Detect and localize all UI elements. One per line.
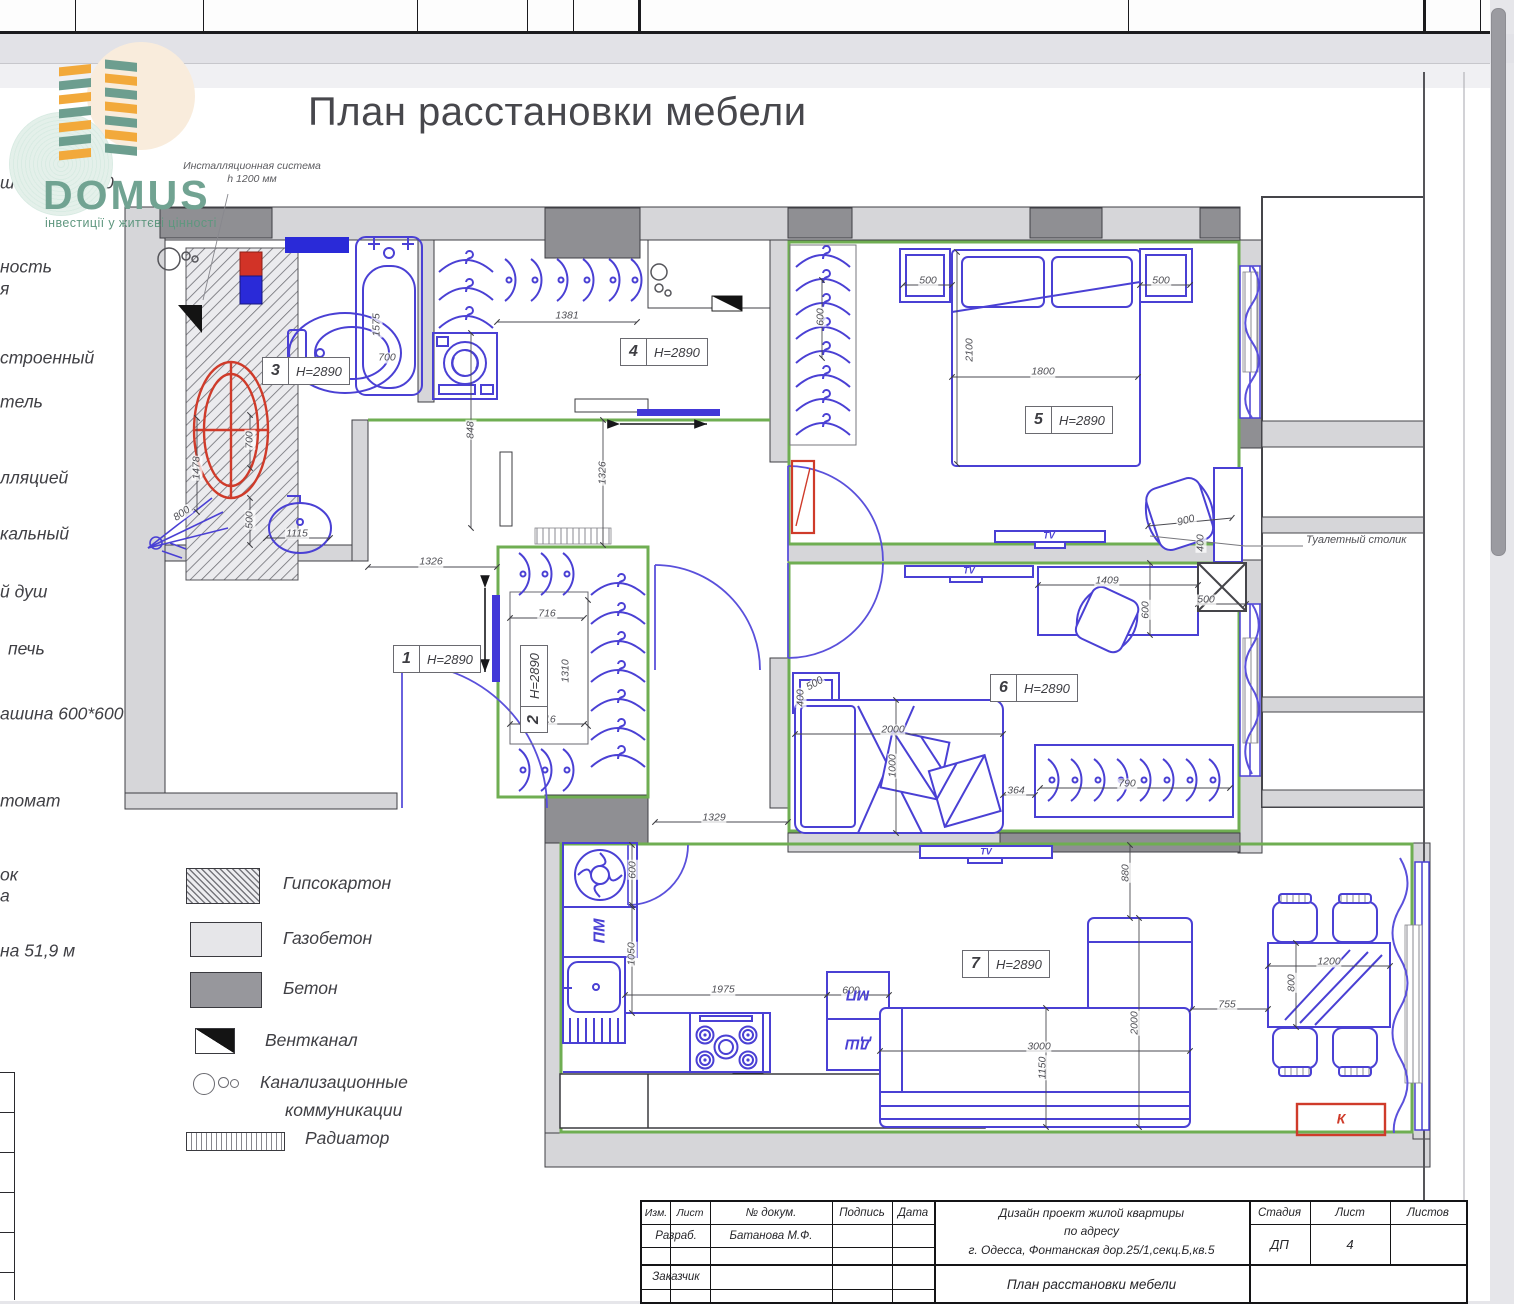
tb-razrab-value: Батанова М.Ф.: [710, 1224, 832, 1247]
left-label: ашина 600*600: [0, 704, 123, 725]
left-label: томат: [0, 791, 60, 812]
dimension-label: 600: [816, 307, 827, 327]
legend-swatch-concrete: [190, 972, 262, 1008]
legend-label-concrete: Бетон: [283, 978, 338, 999]
dimension-label: 755: [1217, 1000, 1237, 1011]
room-label-7: 7H=2890: [962, 950, 1050, 978]
dimension-label: 1409: [1094, 576, 1119, 587]
dimension-label: 790: [1117, 779, 1137, 790]
room-label-5: 5H=2890: [1025, 406, 1113, 434]
dimension-label: 600: [1141, 600, 1152, 620]
title-block: Изм. Лист № докум. Подпись Дата Разраб. …: [640, 1200, 1468, 1304]
legend-label-gypsum: Гипсокартон: [283, 873, 391, 894]
dimension-label: 1115: [285, 529, 309, 540]
room-label-3: 3H=2890: [262, 357, 350, 385]
tb-project-line1: Дизайн проект жилой квартиры: [934, 1204, 1249, 1222]
room-label-1: 1H=2890: [393, 645, 481, 673]
dimension-label: 2100: [965, 337, 976, 362]
tb-col-sign: Подпись: [832, 1202, 892, 1224]
logo-wordmark: DOMUS: [43, 172, 211, 219]
legend-sewer-icon-small: [218, 1077, 229, 1088]
dimension-label: 880: [1121, 863, 1132, 883]
dimension-label: 1000: [888, 753, 899, 778]
dimension-label: 2000: [880, 725, 905, 736]
tb-project-line2: по адресу: [934, 1222, 1249, 1240]
living-furniture: [880, 846, 1390, 1135]
dimension-label: 3000: [1026, 1042, 1051, 1053]
room-label-6: 6H=2890: [990, 674, 1078, 702]
tb-project-line3: г. Одесса, Фонтанская дор.25/1,секц.Б,кв…: [934, 1240, 1249, 1260]
tb-sheet-value: 4: [1310, 1224, 1390, 1264]
legend-label-sewer-1: Канализационные: [260, 1072, 408, 1093]
dimension-label: 700: [377, 353, 397, 364]
tb-sheet-col: Лист: [1310, 1202, 1390, 1224]
dimension-label: TV: [979, 847, 993, 858]
legend-swatch-aeroconcrete: [190, 922, 262, 957]
tb-col-date: Дата: [892, 1202, 934, 1224]
dimension-label: 1381: [554, 311, 579, 322]
dimension-label: 500: [245, 510, 256, 530]
room-label-4: 4H=2890: [620, 338, 708, 366]
legend-label-aeroconcrete: Газобетон: [283, 928, 372, 949]
left-label: строенный: [0, 348, 94, 369]
legend-label-sewer-2: коммуникации: [285, 1100, 402, 1121]
logo-tagline: інвестиції у життєві цінності: [45, 216, 217, 230]
legend-swatch-gypsum: [186, 868, 260, 904]
left-label: на 51,9 м: [0, 941, 75, 962]
dimension-label: 1326: [418, 557, 443, 568]
left-label: а: [0, 886, 10, 907]
legend-label-radiator: Радиатор: [305, 1128, 389, 1149]
dimension-label: TV: [962, 566, 976, 577]
balcony: [1262, 197, 1424, 807]
left-label: печь: [8, 639, 45, 660]
dimension-label: 364: [1006, 786, 1026, 797]
tb-stage-value: ДП: [1249, 1224, 1310, 1264]
dimension-label: 500: [1151, 276, 1171, 287]
dimension-label: 700: [245, 430, 256, 450]
dimension-label: 1200: [1316, 957, 1341, 968]
dimension-label: 1329: [701, 813, 726, 824]
legend-swatch-vent: [195, 1028, 235, 1054]
installation-symbol: [194, 362, 268, 498]
tb-col-izm: Изм.: [642, 1202, 670, 1224]
left-label: й душ: [0, 582, 47, 603]
tb-sheets-col: Листов: [1390, 1202, 1466, 1224]
walls: [125, 207, 1430, 1167]
legend-sewer-icon-small2: [230, 1079, 239, 1088]
legend-swatch-radiator: [186, 1132, 285, 1151]
tb-razrab: Разраб.: [642, 1224, 710, 1247]
tb-zakaz: Заказчик: [642, 1264, 710, 1289]
dimension-label: ПМ: [595, 918, 606, 945]
tb-doc-title: План расстановки мебели: [934, 1270, 1249, 1298]
dimension-label: 400: [796, 688, 807, 708]
dimension-label: К: [1336, 1114, 1347, 1125]
dimension-label: TV: [1042, 531, 1056, 542]
dimension-label: 1800: [1030, 367, 1055, 378]
dimension-label: ДШ: [844, 1039, 872, 1050]
dimension-label: 500: [918, 276, 938, 287]
revision-table-partial: [0, 1072, 15, 1300]
dimension-label: 1050: [627, 941, 638, 966]
dimension-label: 500: [1196, 595, 1216, 606]
screenshot-root: { "title": "План расстановки мебели", "l…: [0, 0, 1514, 1300]
legend-label-vent: Вентканал: [265, 1030, 358, 1051]
toilet-table-label: Туалетный столик: [1306, 534, 1406, 546]
kitchen-units: [563, 843, 889, 1072]
dimension-label: 1478: [192, 455, 203, 480]
dimension-label: 848: [466, 420, 477, 440]
tb-col-list: Лист: [670, 1202, 710, 1224]
dimension-label: МП: [845, 990, 870, 1001]
left-label: я: [0, 279, 9, 300]
bedroom-furniture: [792, 249, 1242, 562]
dimension-label: 1575: [372, 312, 383, 337]
dimension-label: 800: [1287, 973, 1298, 993]
left-label: лляцией: [0, 468, 68, 489]
dimension-label: 600: [628, 860, 639, 880]
tb-stage-col: Стадия: [1249, 1202, 1310, 1224]
left-label: ок: [0, 865, 18, 886]
dimension-label: 400: [1196, 533, 1207, 553]
dimension-label: 1975: [710, 985, 735, 996]
left-label: тель: [0, 392, 43, 413]
left-label: ность: [0, 257, 52, 278]
dimension-label: 1310: [561, 658, 572, 683]
logo-buildings-icon: [53, 46, 173, 178]
dimension-label: 1150: [1038, 1056, 1049, 1081]
left-label: кальный: [0, 524, 69, 545]
logo: DOMUS інвестиції у життєві цінності: [25, 60, 255, 240]
dimension-label: 1326: [598, 460, 609, 485]
room-label-2: 2H=2890: [520, 645, 548, 733]
tb-col-doc: № докум.: [710, 1202, 832, 1224]
legend-sewer-icon: [193, 1073, 215, 1095]
dimension-label: 2000: [1130, 1010, 1141, 1035]
dimension-label: 716: [537, 609, 557, 620]
